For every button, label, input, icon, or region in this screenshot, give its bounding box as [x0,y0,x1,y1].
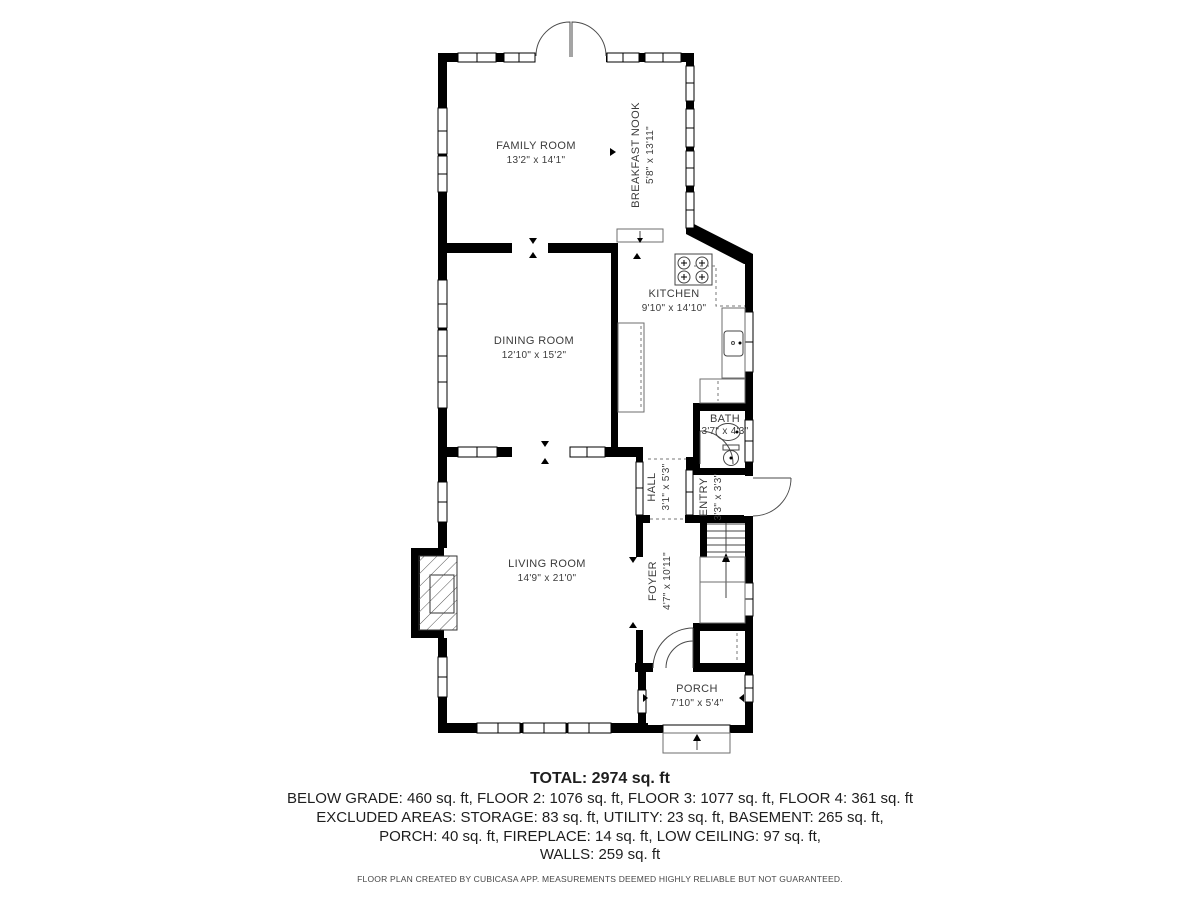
fireplace-icon [411,548,457,638]
room-dims-bath: 3'7" x 4'3" [701,426,748,437]
toilet-icon [723,445,739,466]
room-label-bath: BATH [710,413,740,425]
room-label-breakfast-nook: BREAKFAST NOOK [630,102,642,208]
room-dims-dining: 12'10" x 15'2" [502,350,567,361]
summary-line-3: PORCH: 40 sq. ft, FIREPLACE: 14 sq. ft, … [379,828,821,845]
room-dims-living: 14'9" x 21'0" [518,573,577,584]
summary-total: TOTAL: 2974 sq. ft [530,770,671,787]
floor-plan-page: FAMILY ROOM 13'2" x 14'1" BREAKFAST NOOK… [0,0,1200,900]
room-label-foyer: FOYER [647,561,659,601]
porch-steps-icon [663,733,730,753]
summary-line-4: WALLS: 259 sq. ft [540,846,661,863]
area-summary: TOTAL: 2974 sq. ft BELOW GRADE: 460 sq. … [287,770,914,863]
front-door-icon [753,478,791,516]
stove-icon [675,254,712,285]
floor-plan-canvas: FAMILY ROOM 13'2" x 14'1" BREAKFAST NOOK… [0,0,1200,900]
summary-line-1: BELOW GRADE: 460 sq. ft, FLOOR 2: 1076 s… [287,790,914,807]
room-dims-porch: 7'10" x 5'4" [671,698,724,709]
footer-disclaimer: FLOOR PLAN CREATED BY CUBICASA APP. MEAS… [357,874,843,884]
room-dims-foyer: 4'7" x 10'11" [662,552,673,610]
room-dims-breakfast-nook: 5'8" x 13'11" [645,126,656,184]
room-label-kitchen: KITCHEN [648,288,699,300]
room-label-hall: HALL [646,472,658,501]
room-dims-hall: 3'1" x 5'3" [661,463,672,510]
room-label-entry: ENTRY [698,477,710,516]
room-label-living: LIVING ROOM [508,558,586,570]
windows-breakfast-nook [686,66,694,228]
room-label-dining: DINING ROOM [494,335,574,347]
step-indicator-icon [617,229,663,243]
room-dims-entry: 3'3" x 3'3" [713,473,724,520]
windows-bottom-wall [477,723,611,733]
kitchen-sink-icon [724,331,743,356]
room-dims-kitchen: 9'10" x 14'10" [642,303,707,314]
room-label-family: FAMILY ROOM [496,140,576,152]
opening-markers [529,148,744,702]
room-label-porch: PORCH [676,683,718,695]
summary-line-2: EXCLUDED AREAS: STORAGE: 83 sq. ft, UTIL… [316,809,883,826]
room-dims-family: 13'2" x 14'1" [507,155,566,166]
